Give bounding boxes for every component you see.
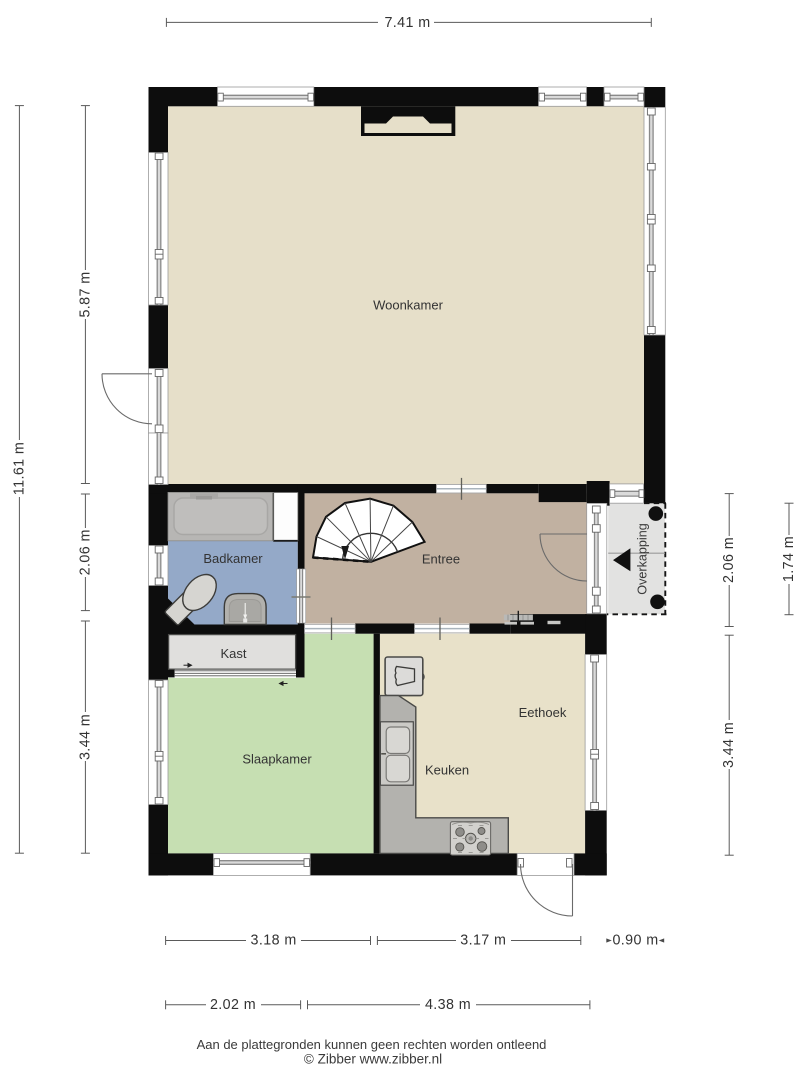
svg-text:3.44 m: 3.44 m	[721, 722, 737, 768]
svg-text:Entree: Entree	[422, 552, 460, 567]
svg-text:4.38 m: 4.38 m	[425, 997, 471, 1013]
svg-text:1.74 m: 1.74 m	[781, 536, 797, 582]
svg-text:Slaapkamer: Slaapkamer	[242, 752, 312, 767]
svg-text:Woonkamer: Woonkamer	[373, 298, 444, 313]
svg-text:3.44 m: 3.44 m	[77, 714, 93, 760]
svg-text:Badkamer: Badkamer	[203, 551, 263, 566]
svg-text:2.06 m: 2.06 m	[77, 529, 93, 575]
svg-text:3.17 m: 3.17 m	[460, 933, 506, 949]
svg-text:11.61 m: 11.61 m	[11, 442, 27, 495]
svg-text:Overkapping: Overkapping	[636, 523, 650, 594]
svg-text:Eethoek: Eethoek	[519, 705, 567, 720]
svg-text:2.02 m: 2.02 m	[210, 997, 256, 1013]
svg-text:Aan de plattegronden kunnen ge: Aan de plattegronden kunnen geen rechten…	[197, 1037, 547, 1052]
svg-text:2.06 m: 2.06 m	[721, 537, 737, 583]
svg-text:3.18 m: 3.18 m	[251, 933, 297, 949]
svg-text:Keuken: Keuken	[425, 763, 469, 778]
svg-text:5.87 m: 5.87 m	[77, 271, 93, 317]
svg-text:© Zibber www.zibber.nl: © Zibber www.zibber.nl	[304, 1052, 442, 1067]
svg-text:7.41 m: 7.41 m	[384, 15, 430, 31]
svg-text:Kast: Kast	[220, 646, 246, 661]
svg-text:0.90 m: 0.90 m	[612, 933, 658, 949]
